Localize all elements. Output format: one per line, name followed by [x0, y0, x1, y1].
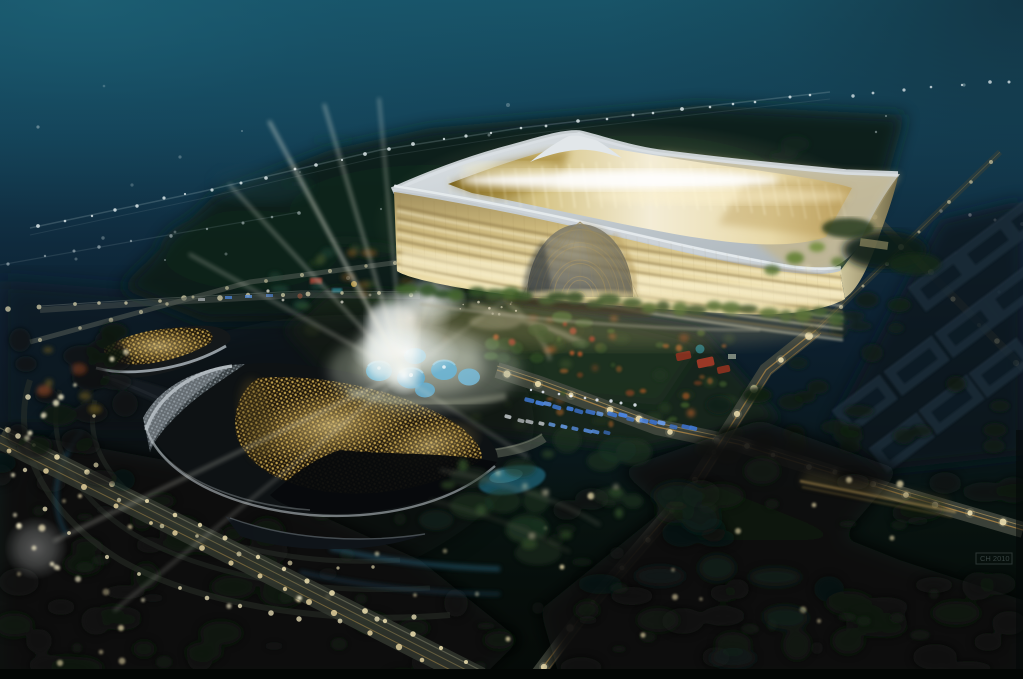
svg-text:CH 2010: CH 2010	[980, 554, 1010, 563]
